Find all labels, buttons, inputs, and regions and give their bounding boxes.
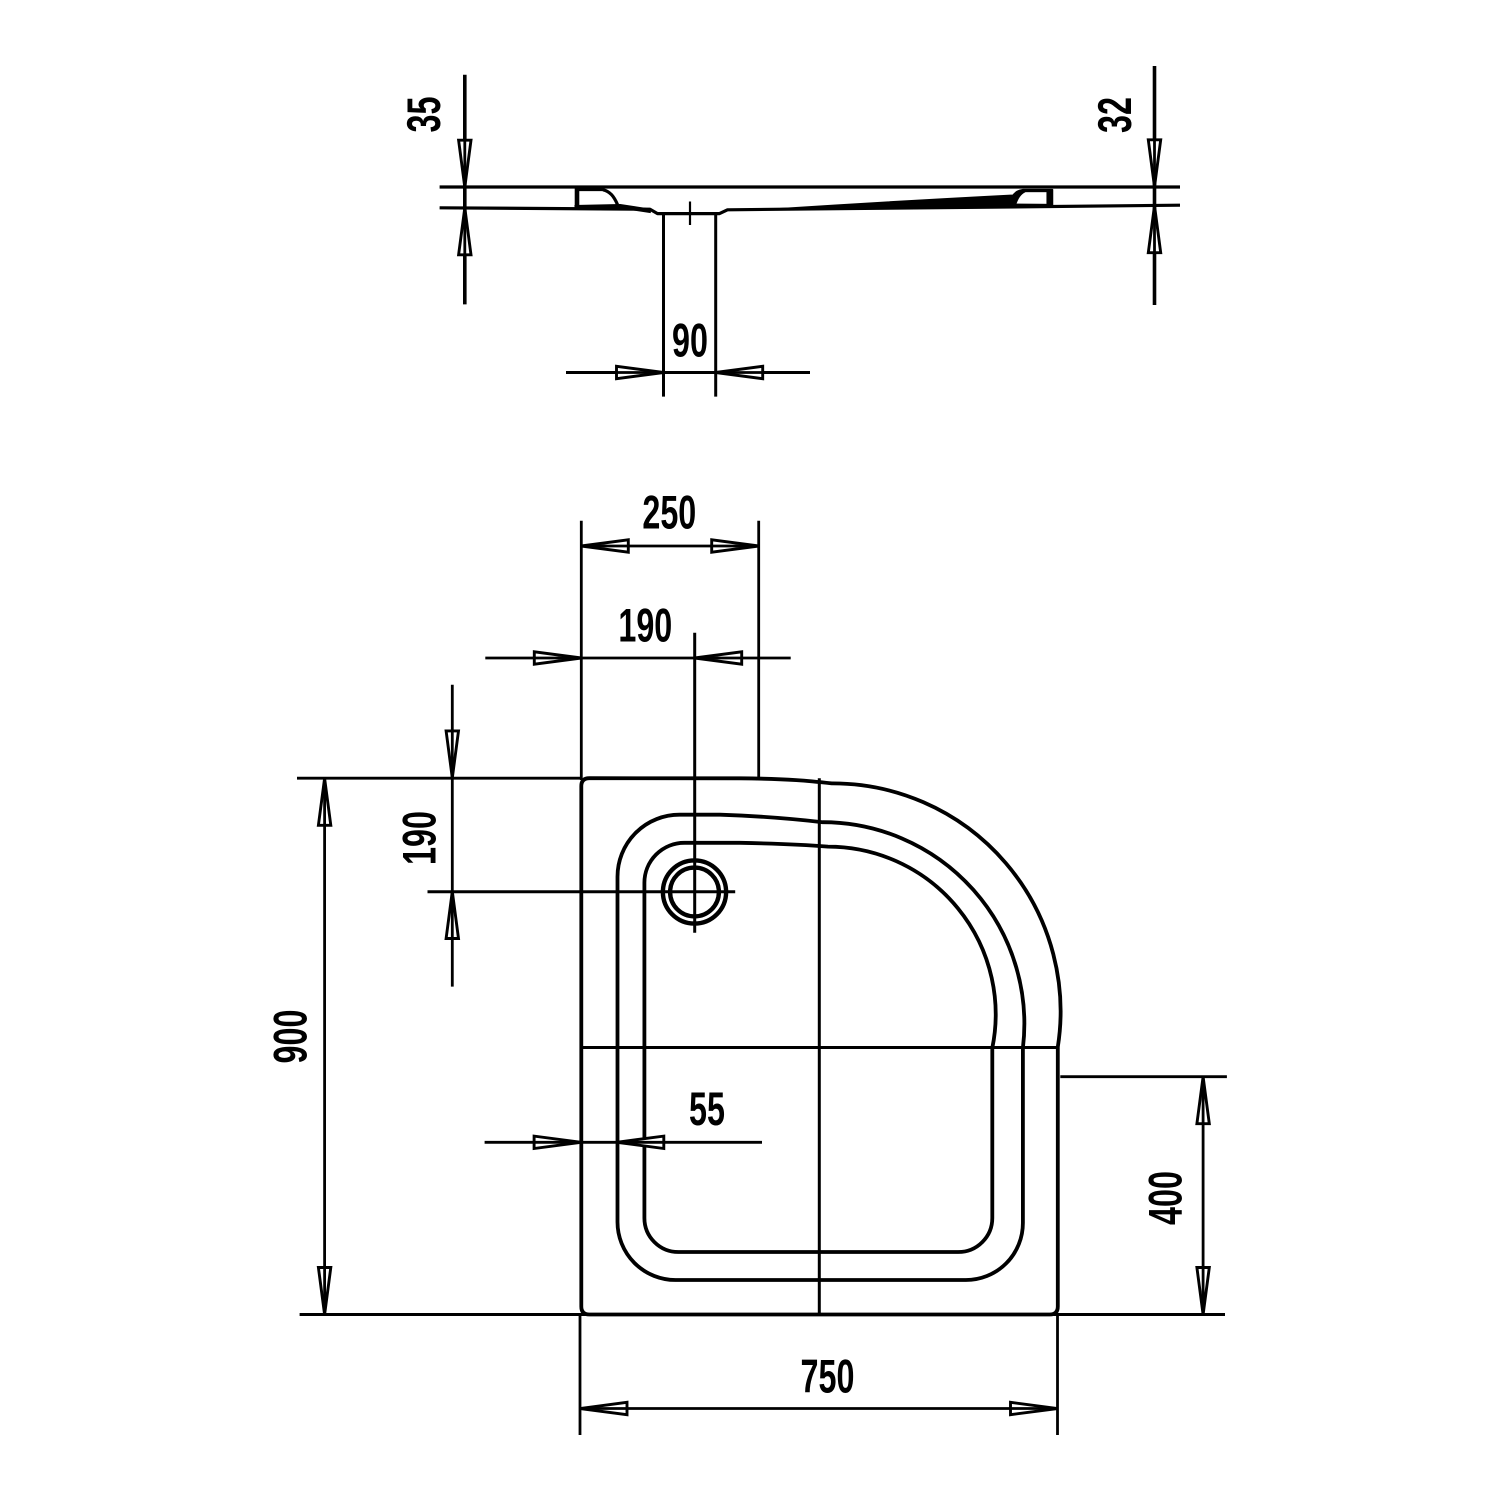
svg-text:190: 190 [618, 598, 672, 652]
svg-text:750: 750 [801, 1349, 855, 1403]
svg-text:32: 32 [1088, 97, 1142, 133]
svg-text:250: 250 [642, 485, 696, 539]
svg-text:400: 400 [1138, 1171, 1192, 1225]
svg-text:55: 55 [689, 1082, 725, 1136]
svg-text:35: 35 [397, 97, 451, 133]
svg-text:900: 900 [263, 1010, 317, 1064]
svg-text:190: 190 [392, 811, 446, 865]
svg-text:90: 90 [672, 313, 708, 367]
